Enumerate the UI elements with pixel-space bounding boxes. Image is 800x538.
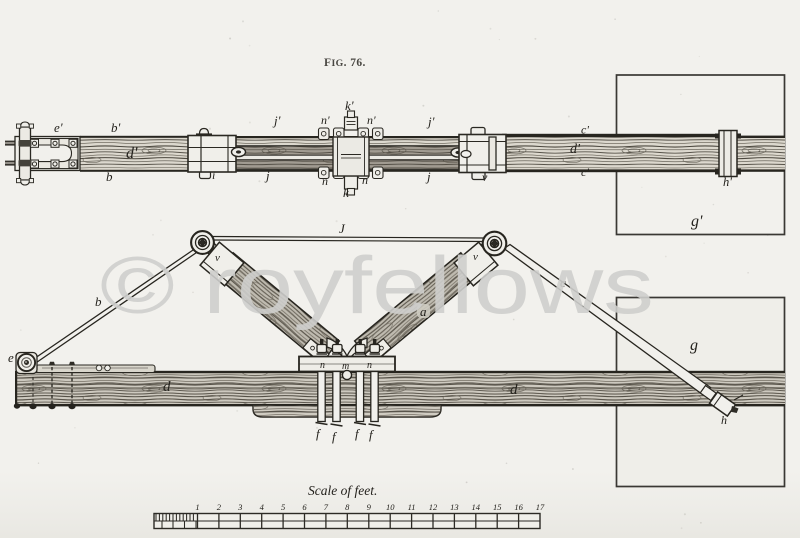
svg-text:n': n' <box>321 113 330 127</box>
svg-text:k: k <box>343 185 349 200</box>
svg-text:b': b' <box>111 120 121 135</box>
svg-text:7: 7 <box>324 502 329 512</box>
svg-text:d': d' <box>126 145 138 162</box>
svg-text:n: n <box>367 360 372 371</box>
svg-text:4: 4 <box>260 502 265 512</box>
svg-text:h': h' <box>723 175 732 189</box>
svg-text:g': g' <box>691 213 703 230</box>
svg-text:9: 9 <box>367 502 372 512</box>
svg-text:1: 1 <box>195 502 199 512</box>
svg-text:b: b <box>106 169 113 184</box>
svg-text:i: i <box>212 168 215 182</box>
svg-text:g: g <box>690 337 698 354</box>
svg-text:n: n <box>362 173 368 187</box>
svg-text:2: 2 <box>217 502 222 512</box>
svg-text:© royfellows: © royfellows <box>100 241 654 331</box>
svg-text:d: d <box>510 382 518 398</box>
svg-text:3: 3 <box>237 502 242 512</box>
svg-text:d: d <box>163 379 171 395</box>
svg-text:11: 11 <box>408 502 416 512</box>
svg-text:Scale of feet.: Scale of feet. <box>308 483 377 498</box>
svg-text:m: m <box>342 361 349 372</box>
svg-text:n': n' <box>367 113 376 127</box>
svg-text:10: 10 <box>386 502 395 512</box>
svg-text:c': c' <box>581 123 589 137</box>
svg-text:13: 13 <box>450 502 459 512</box>
svg-text:5: 5 <box>281 502 285 512</box>
svg-text:k': k' <box>345 98 354 113</box>
svg-text:14: 14 <box>472 502 481 512</box>
svg-text:12: 12 <box>429 502 438 512</box>
svg-text:e': e' <box>54 120 63 135</box>
svg-text:h: h <box>721 413 727 427</box>
svg-text:e: e <box>8 350 14 365</box>
svg-text:FIG. 76.: FIG. 76. <box>324 57 366 69</box>
svg-text:n: n <box>322 174 328 188</box>
svg-text:17: 17 <box>536 502 545 512</box>
svg-text:n: n <box>320 360 325 371</box>
svg-text:8: 8 <box>345 502 350 512</box>
svg-text:v: v <box>482 170 488 184</box>
svg-text:15: 15 <box>493 502 502 512</box>
svg-text:j': j' <box>426 114 435 129</box>
svg-text:16: 16 <box>514 502 523 512</box>
svg-text:d': d' <box>570 142 581 157</box>
svg-text:c': c' <box>581 165 589 179</box>
svg-text:j': j' <box>272 113 281 128</box>
